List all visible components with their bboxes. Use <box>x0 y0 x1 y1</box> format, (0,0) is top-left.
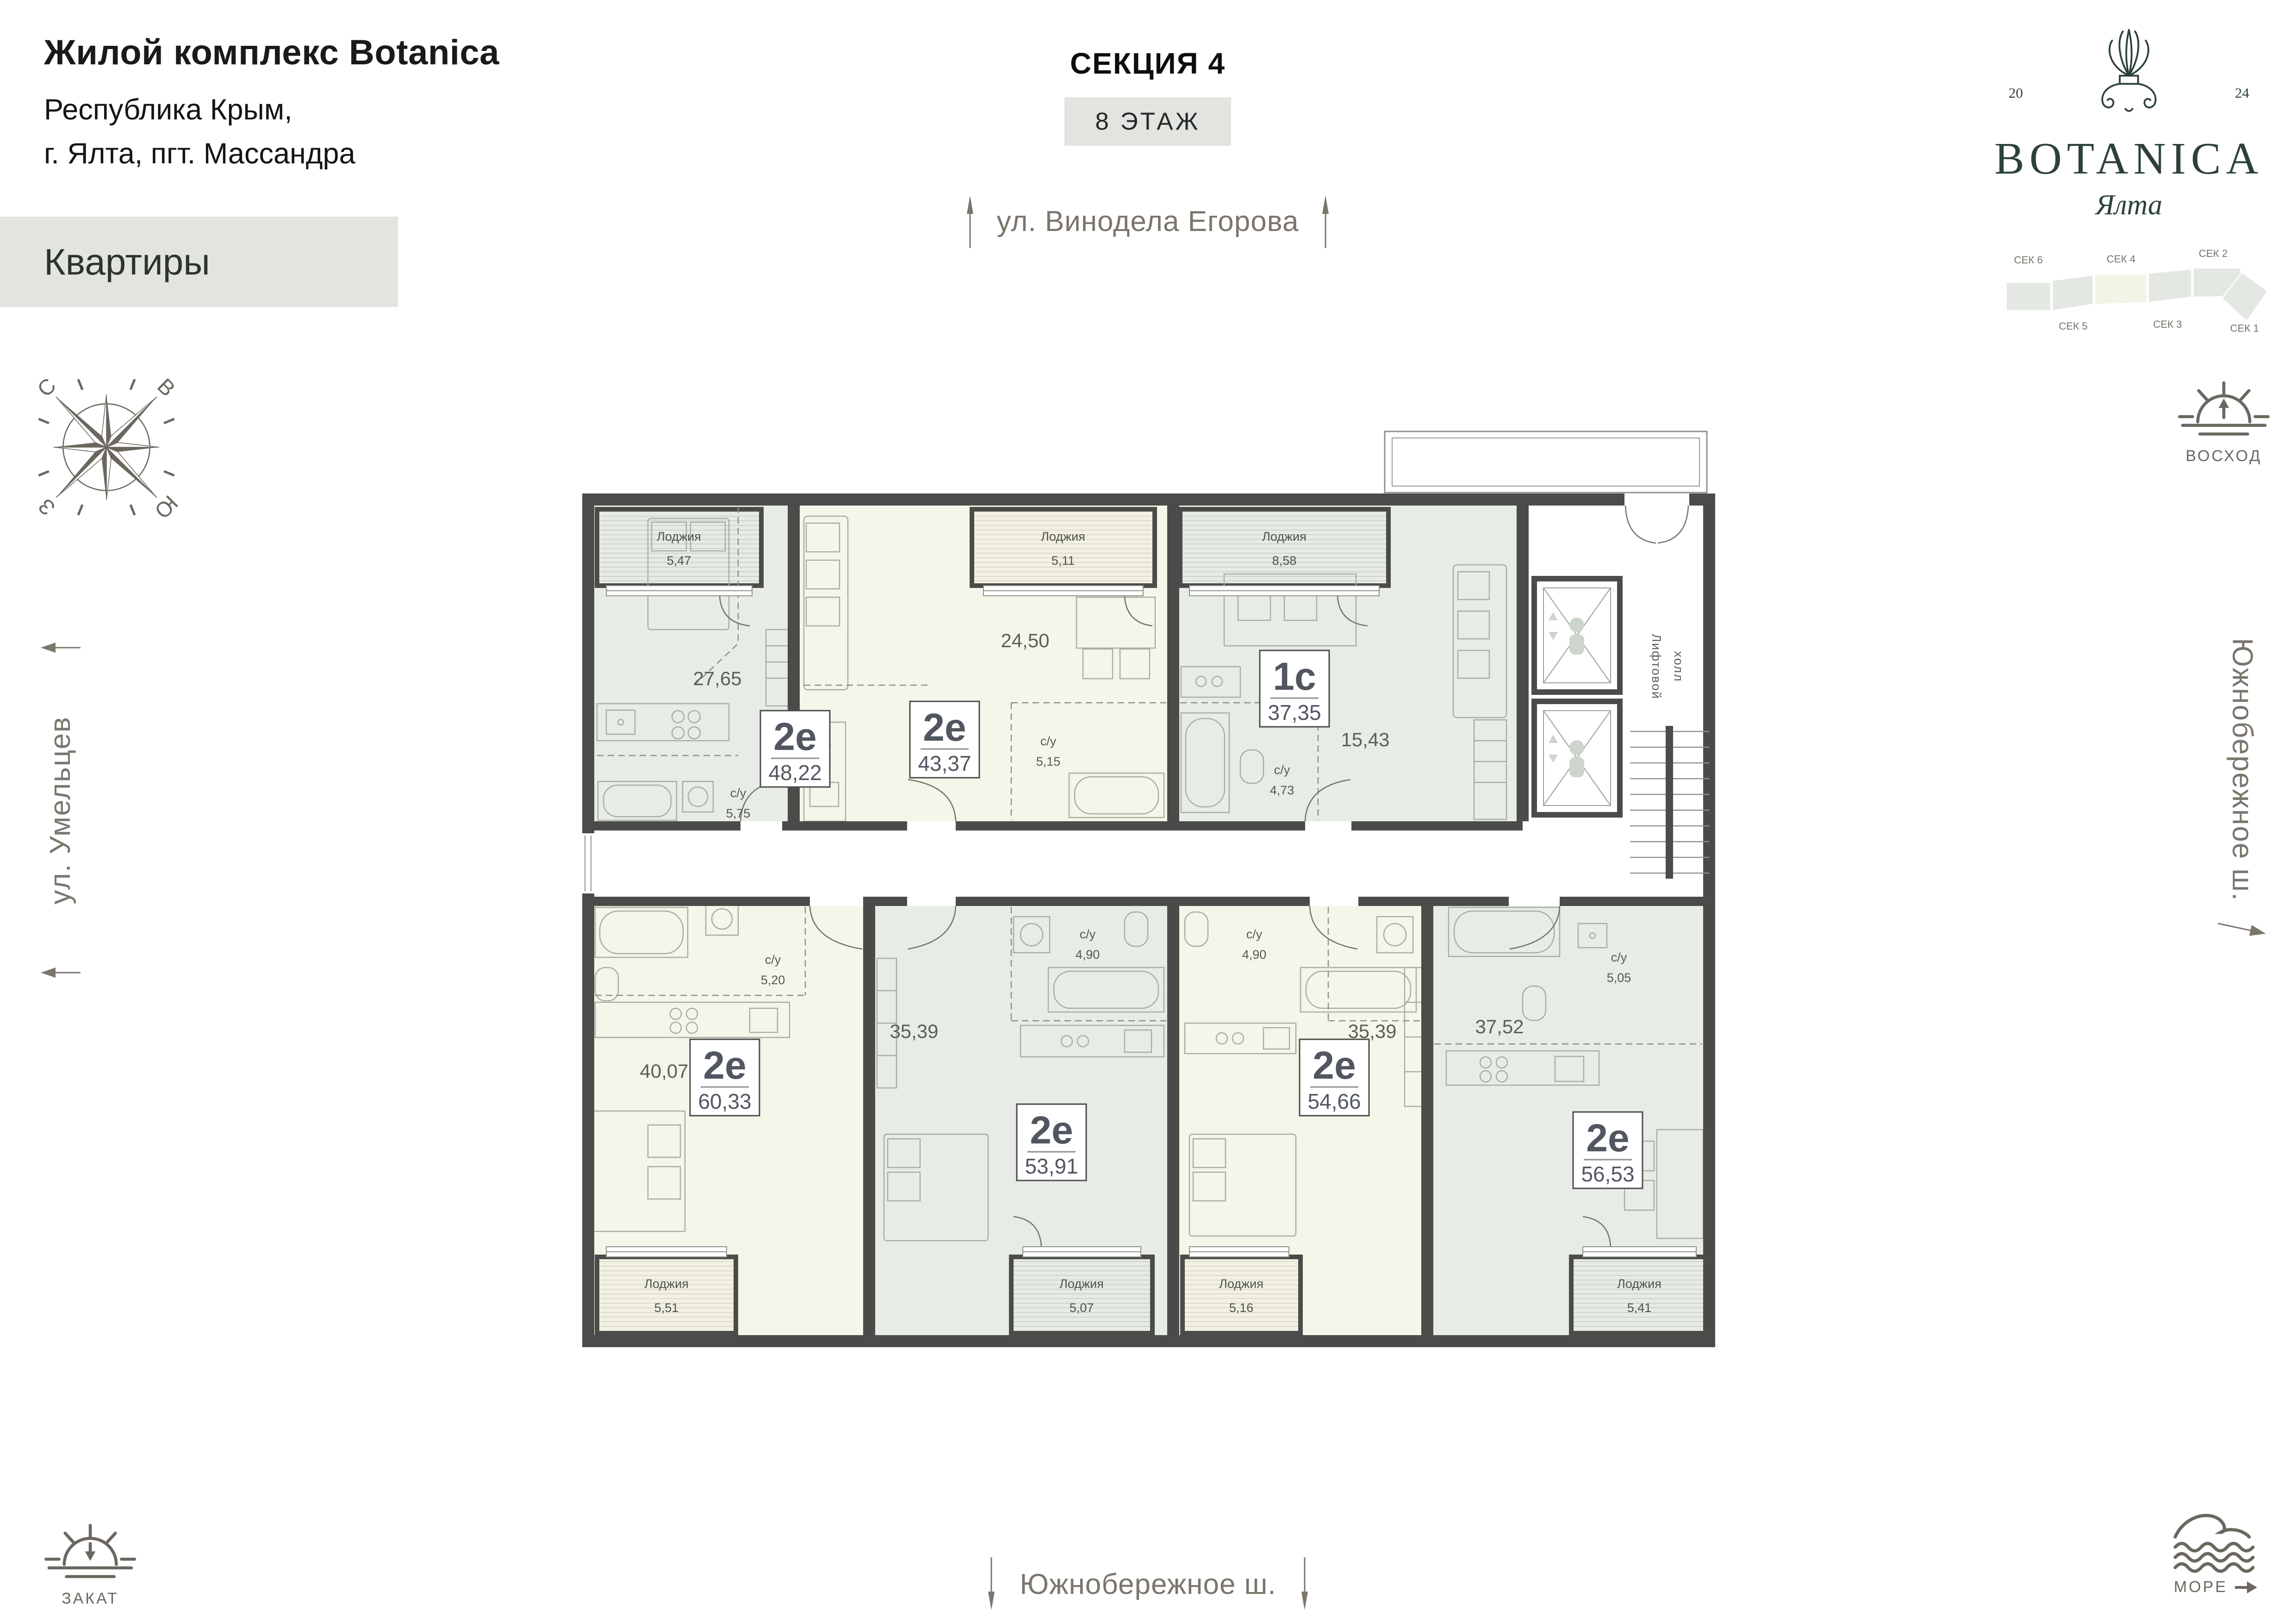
brand-name: BOTANICA <box>1981 133 2277 184</box>
loggia-value: 8,58 <box>1272 554 1297 568</box>
loggia-word: Лоджия <box>1219 1277 1263 1291</box>
loggia-word: Лоджия <box>1262 530 1307 543</box>
address-line-1: Республика Крым, <box>44 88 355 132</box>
loggia-word: Лоджия <box>1617 1277 1661 1291</box>
minimap-sec6 <box>2006 282 2051 311</box>
apartment-area: 43,37 <box>918 751 971 775</box>
wc-value: 5,75 <box>726 806 751 820</box>
loggia-value: 5,51 <box>654 1301 679 1315</box>
apartment-type: 2е <box>703 1043 746 1087</box>
apartment-type: 2е <box>1586 1116 1629 1160</box>
apartment-badge-4[interactable]: 2е 60,33 <box>690 1039 759 1116</box>
loggia-2 <box>972 509 1155 586</box>
minimap-label: СЕК 5 <box>2059 320 2087 332</box>
section-header: СЕКЦИЯ 4 8 ЭТАЖ <box>963 46 1333 146</box>
loggia-word: Лоджия <box>657 530 701 543</box>
entry-vestibule <box>1385 431 1707 493</box>
wc-value: 4,73 <box>1270 783 1294 797</box>
wc-value: 5,05 <box>1607 971 1631 985</box>
palmette-icon <box>2090 22 2168 124</box>
apartment-type: 2е <box>1313 1043 1356 1087</box>
street-top-label: ул. Винодела Егорова <box>997 205 1299 238</box>
sunrise-label: ВОСХОД <box>2168 447 2279 465</box>
street-right: Южнобережное ш. <box>2208 638 2277 940</box>
address-line-2: г. Ялта, пгт. Массандра <box>44 132 355 176</box>
apartment-area: 60,33 <box>698 1089 751 1113</box>
wc-word: с/у <box>1246 927 1263 941</box>
elevator-shaft-2 <box>1534 701 1620 815</box>
right-arrow-icon <box>2215 917 2270 940</box>
down-arrow-icon <box>1299 1556 1311 1612</box>
minimap-sec5 <box>2052 275 2093 311</box>
street-bottom: Южнобережное ш. <box>0 1556 2296 1612</box>
apartment-area: 48,22 <box>768 761 821 785</box>
down-arrow-icon <box>985 1556 997 1612</box>
wc-word: с/у <box>765 953 781 967</box>
room-area: 27,65 <box>693 668 741 689</box>
apartment-type: 2е <box>923 706 966 749</box>
section-title: СЕКЦИЯ 4 <box>963 46 1333 81</box>
wc-word: с/у <box>1611 950 1627 964</box>
apartment-badge-7[interactable]: 2е 56,53 <box>1573 1112 1643 1188</box>
apartment-type: 2е <box>773 715 816 758</box>
street-left-label: ул. Умельцев <box>44 716 77 905</box>
room-area: 35,39 <box>890 1020 938 1042</box>
left-arrow-icon <box>38 966 82 979</box>
street-bottom-label: Южнобережное ш. <box>1020 1568 1276 1601</box>
minimap-label: СЕК 1 <box>2230 323 2259 334</box>
sunset-icon <box>39 1518 141 1587</box>
logo-year-right: 24 <box>2235 85 2249 101</box>
apartment-badge-5[interactable]: 2е 53,91 <box>1017 1104 1086 1181</box>
page-title: Жилой комплекс Botanica <box>44 32 499 73</box>
room-area: 40,07 <box>640 1060 688 1082</box>
street-right-label: Южнобережное ш. <box>2226 638 2259 901</box>
minimap-label: СЕК 4 <box>2107 253 2135 265</box>
minimap-label: СЕК 6 <box>2014 254 2043 266</box>
compass-rose-icon: С В З Ю <box>29 369 184 525</box>
corridor-fill <box>594 831 1523 897</box>
loggia-1 <box>597 509 761 586</box>
apartment-type: 1с <box>1273 655 1316 698</box>
compass-west: З <box>33 494 60 520</box>
wc-word: с/у <box>1274 763 1290 777</box>
wc-value: 5,20 <box>761 973 785 987</box>
wc-word: с/у <box>1080 927 1096 941</box>
room-area: 24,50 <box>1001 630 1049 651</box>
street-top: ул. Винодела Егорова <box>856 194 1439 249</box>
logo-ornament: 20 24 <box>1981 22 2277 126</box>
apartments-label: Квартиры <box>44 241 210 283</box>
wc-word: с/у <box>1040 734 1057 748</box>
sea-legend: МОРЕ <box>2160 1508 2271 1596</box>
loggia-7 <box>1571 1257 1708 1333</box>
loggia-value: 5,41 <box>1627 1301 1652 1315</box>
wc-value: 4,90 <box>1076 948 1100 962</box>
up-arrow-icon <box>964 194 976 249</box>
apartment-type: 2е <box>1030 1108 1073 1152</box>
lift-hall-label-2: холл <box>1672 651 1686 682</box>
wc-word: с/у <box>730 786 747 800</box>
loggia-4 <box>597 1257 736 1333</box>
apartment-area: 53,91 <box>1025 1154 1078 1178</box>
loggia-value: 5,11 <box>1052 554 1075 568</box>
logo-year-left: 20 <box>2009 85 2023 101</box>
sea-arrow-icon <box>2234 1580 2258 1595</box>
brand-city: Ялта <box>1981 189 2277 222</box>
left-arrow-icon <box>38 641 82 654</box>
room-area: 37,52 <box>1475 1016 1524 1037</box>
loggia-word: Лоджия <box>644 1277 689 1291</box>
elevator-shaft-1 <box>1534 579 1620 692</box>
wc-value: 5,15 <box>1036 755 1061 768</box>
loggia-value: 5,07 <box>1070 1301 1094 1315</box>
minimap-label: СЕК 3 <box>2153 319 2182 330</box>
apartment-badge-6[interactable]: 2е 54,66 <box>1300 1039 1369 1116</box>
wc-value: 4,90 <box>1242 948 1267 962</box>
loggia-6 <box>1182 1257 1300 1333</box>
brand-logo: 20 24 BOTANICA Ялта <box>1981 22 2277 222</box>
loggia-word: Лоджия <box>1041 530 1085 543</box>
apartment-badge-2[interactable]: 2е 43,37 <box>910 701 979 778</box>
sunset-label: ЗАКАТ <box>35 1590 146 1608</box>
minimap-sec3 <box>2148 269 2192 302</box>
project-address: Республика Крым, г. Ялта, пгт. Массандра <box>44 88 355 175</box>
up-arrow-icon <box>1319 194 1332 249</box>
apartment-area: 37,35 <box>1268 700 1321 725</box>
waves-icon <box>2170 1508 2262 1575</box>
section-minimap: СЕК 6 СЕК 4 СЕК 2 СЕК 5 СЕК 3 СЕК 1 <box>1999 238 2268 336</box>
lift-hall-label-1: Лифтовой <box>1649 634 1663 700</box>
room-area: 15,43 <box>1341 729 1389 750</box>
floor-badge: 8 ЭТАЖ <box>1064 97 1231 146</box>
apartment-badge-1[interactable]: 2е 48,22 <box>760 711 830 787</box>
sunrise-icon <box>2173 375 2275 444</box>
minimap-sec4-highlight <box>2095 274 2147 305</box>
sunrise-legend: ВОСХОД <box>2168 375 2279 465</box>
apartments-label-box: Квартиры <box>0 217 398 307</box>
floor-plan: Лифтовой холл Лоджия 5,47 Лоджия 5,11 Ло… <box>579 426 1722 1389</box>
apartment-area: 56,53 <box>1581 1162 1634 1186</box>
apartment-badge-3[interactable]: 1с 37,35 <box>1260 650 1329 727</box>
sunset-legend: ЗАКАТ <box>35 1518 146 1608</box>
street-left: ул. Умельцев <box>28 641 93 979</box>
loggia-value: 5,16 <box>1229 1301 1254 1315</box>
loggia-word: Лоджия <box>1059 1277 1104 1291</box>
loggia-5 <box>1011 1257 1152 1333</box>
minimap-label: СЕК 2 <box>2199 248 2228 259</box>
sea-label: МОРЕ <box>2174 1578 2228 1596</box>
apartment-area: 54,66 <box>1307 1089 1361 1113</box>
loggia-value: 5,47 <box>667 554 691 568</box>
